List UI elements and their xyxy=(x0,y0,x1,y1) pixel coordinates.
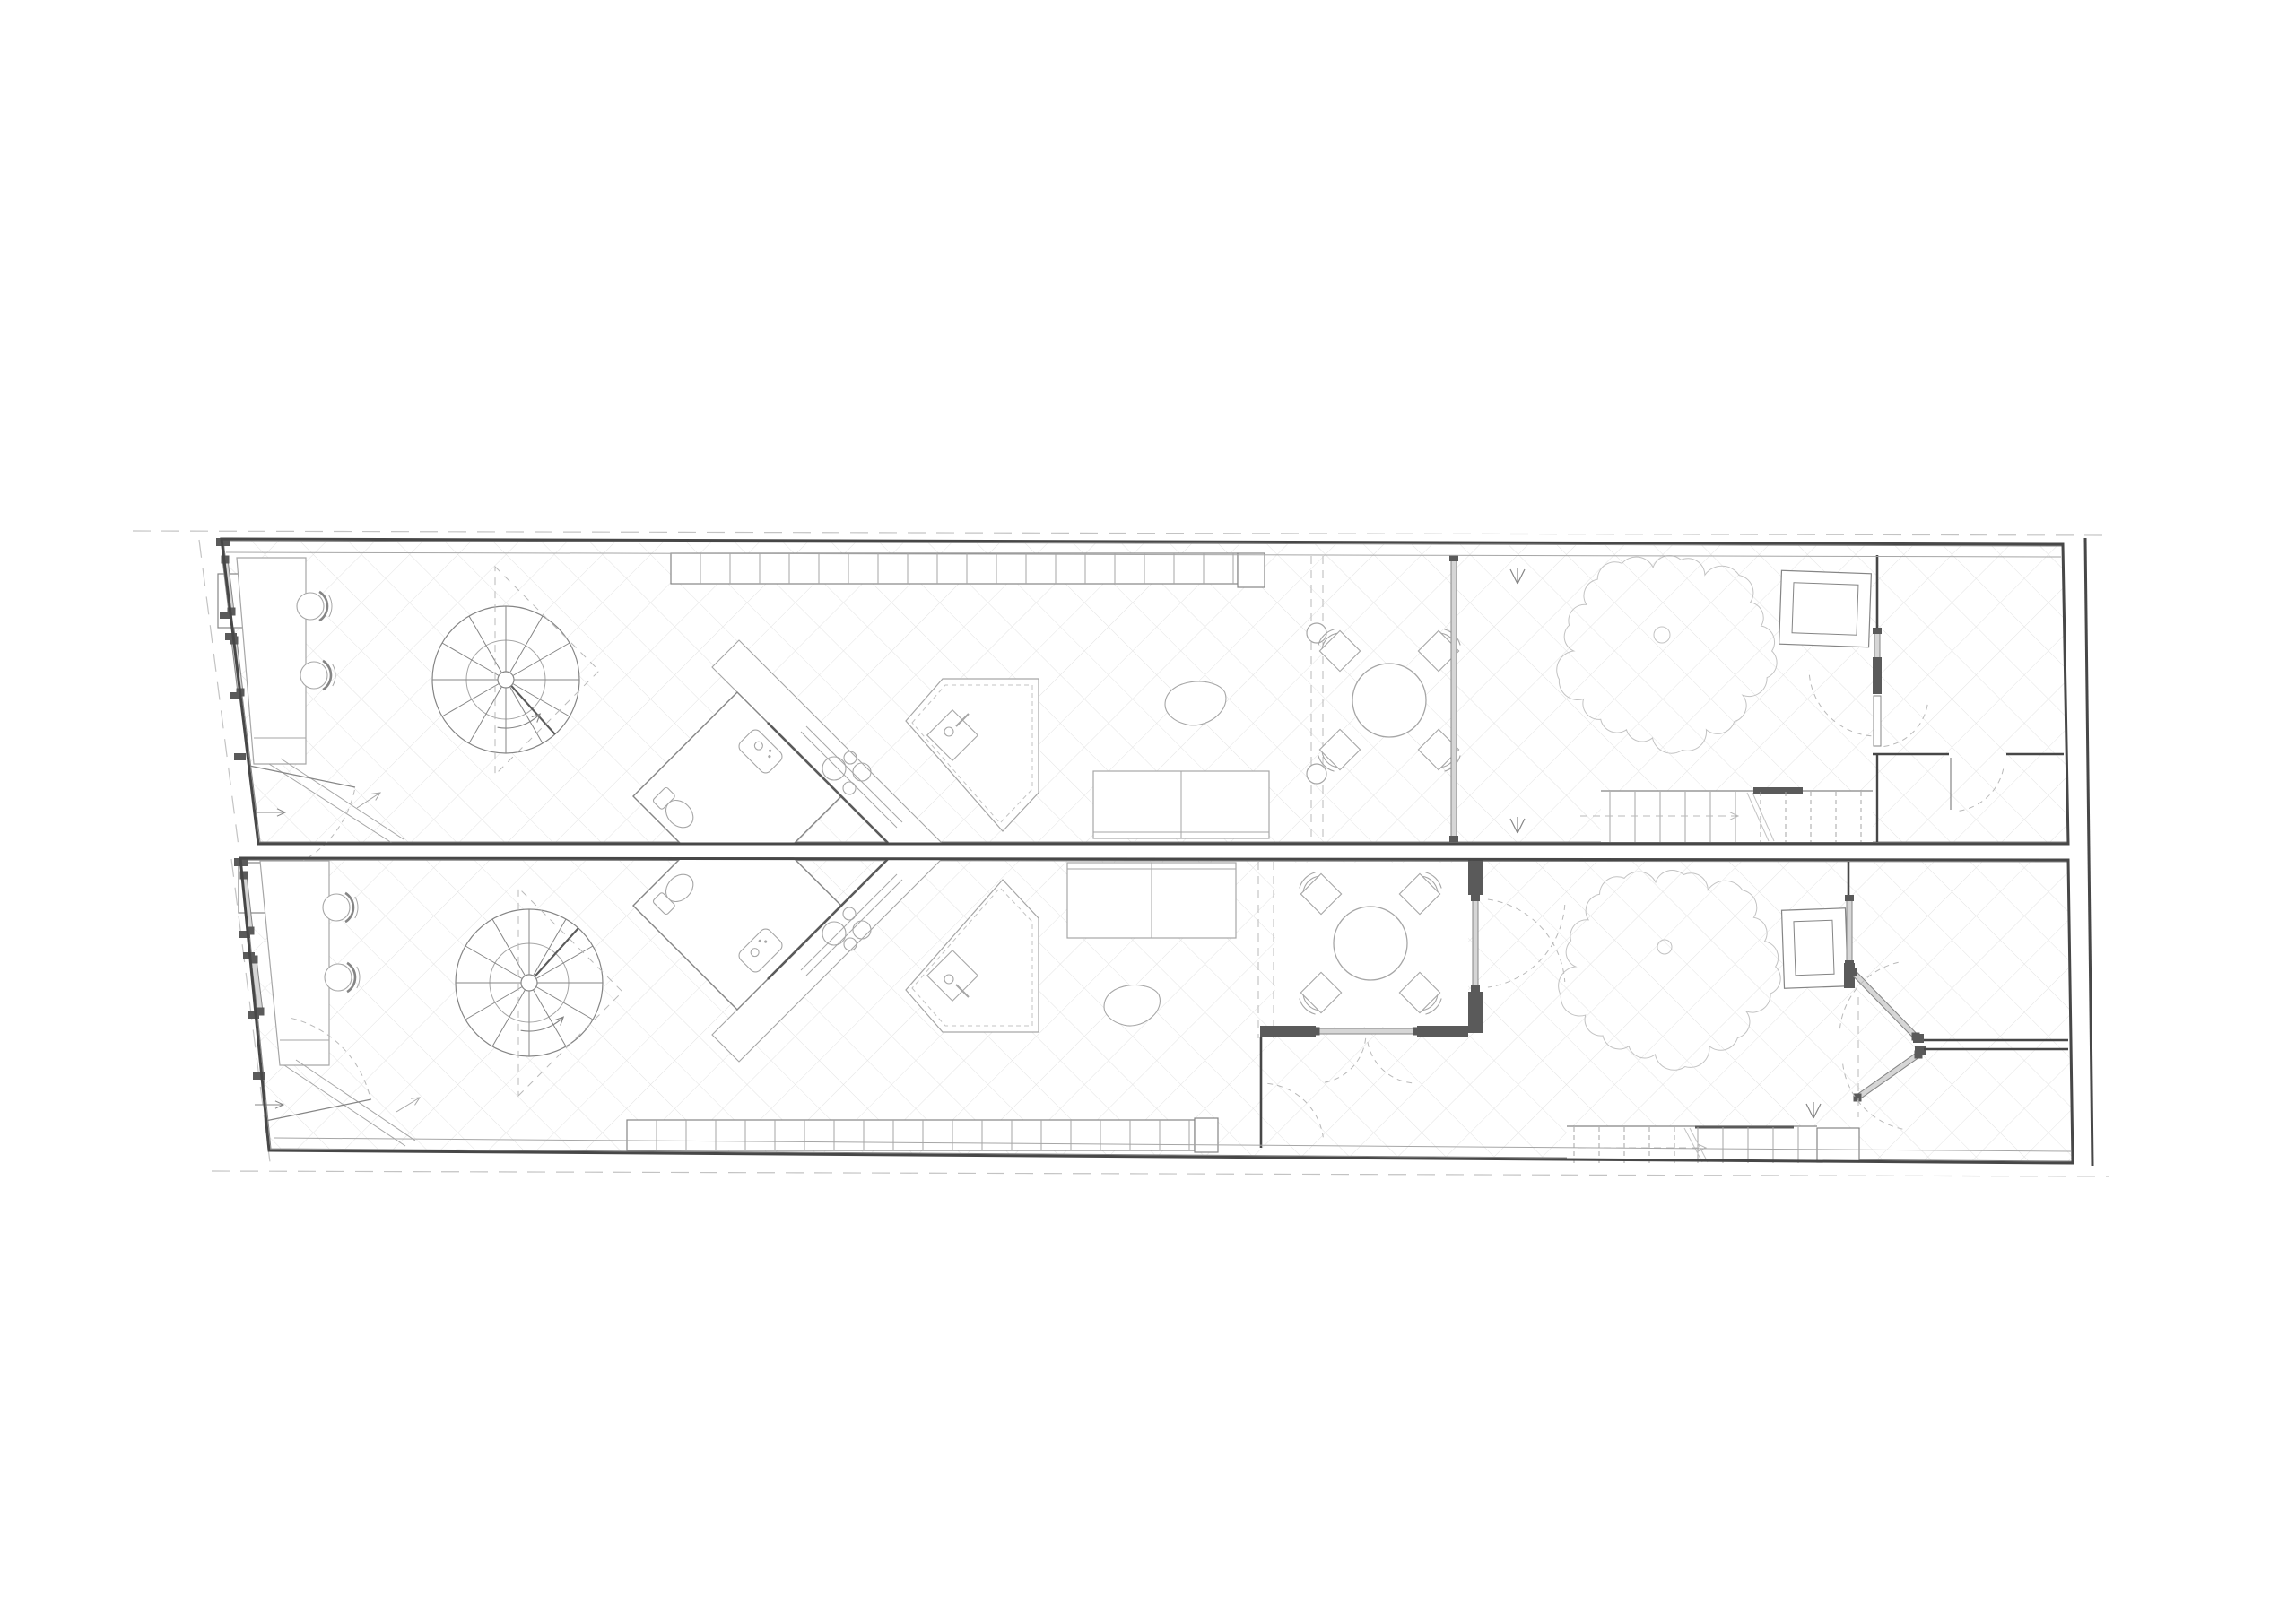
unit-a-window-jamb-5 xyxy=(234,753,246,760)
unit-b-dining-wall-se xyxy=(1468,992,1483,1033)
floor-plan-canvas xyxy=(0,0,2296,1623)
unit-a-column-1 xyxy=(1307,623,1326,643)
unit-b-wardrobe-strip xyxy=(627,1120,1195,1150)
unit-b-garden-glazing-n xyxy=(1845,895,1854,967)
unit-a-window-jamb-3 xyxy=(225,633,237,640)
unit-a-wardrobe-cap xyxy=(1238,553,1265,587)
unit-b-wardrobe-cap xyxy=(1195,1118,1218,1152)
floor-plan-page xyxy=(0,0,2296,1623)
unit-b-v-jamb-2 xyxy=(1915,1046,1926,1055)
unit-b-sofa xyxy=(1067,863,1236,938)
unit-a-spiral-stair xyxy=(432,606,579,753)
unit-a-door-jamb-block xyxy=(1873,664,1882,694)
unit-b-dining-glazing-e xyxy=(1471,895,1480,992)
unit-b-dining-wall-s1 xyxy=(1260,1026,1316,1037)
unit-b-skylight xyxy=(1782,908,1848,988)
unit-b-dining-glazing-s xyxy=(1312,1028,1422,1036)
unit-a-garden-glazing xyxy=(1449,555,1458,842)
property-line-bottom xyxy=(212,1171,2109,1176)
party-wall-right-gap xyxy=(2085,538,2092,1166)
unit-b-v-jamb-1 xyxy=(1913,1034,1924,1043)
unit-a-column-2 xyxy=(1307,764,1326,784)
unit-a-garden-door-leaf xyxy=(1874,696,1881,746)
unit-a-sofa xyxy=(1093,771,1269,838)
unit-b-window-jamb-4 xyxy=(248,1011,259,1019)
unit-b-stair-landing xyxy=(1817,1128,1859,1162)
unit-b-dining-wall-ne xyxy=(1468,859,1483,895)
unit-a-wardrobe-strip xyxy=(671,553,1238,584)
unit-b-dining-wall-s2 xyxy=(1417,1026,1468,1037)
property-line-top xyxy=(133,531,2109,535)
unit-b-spiral-stair xyxy=(456,909,603,1056)
unit-a-garden-door-glazing xyxy=(1873,628,1882,664)
